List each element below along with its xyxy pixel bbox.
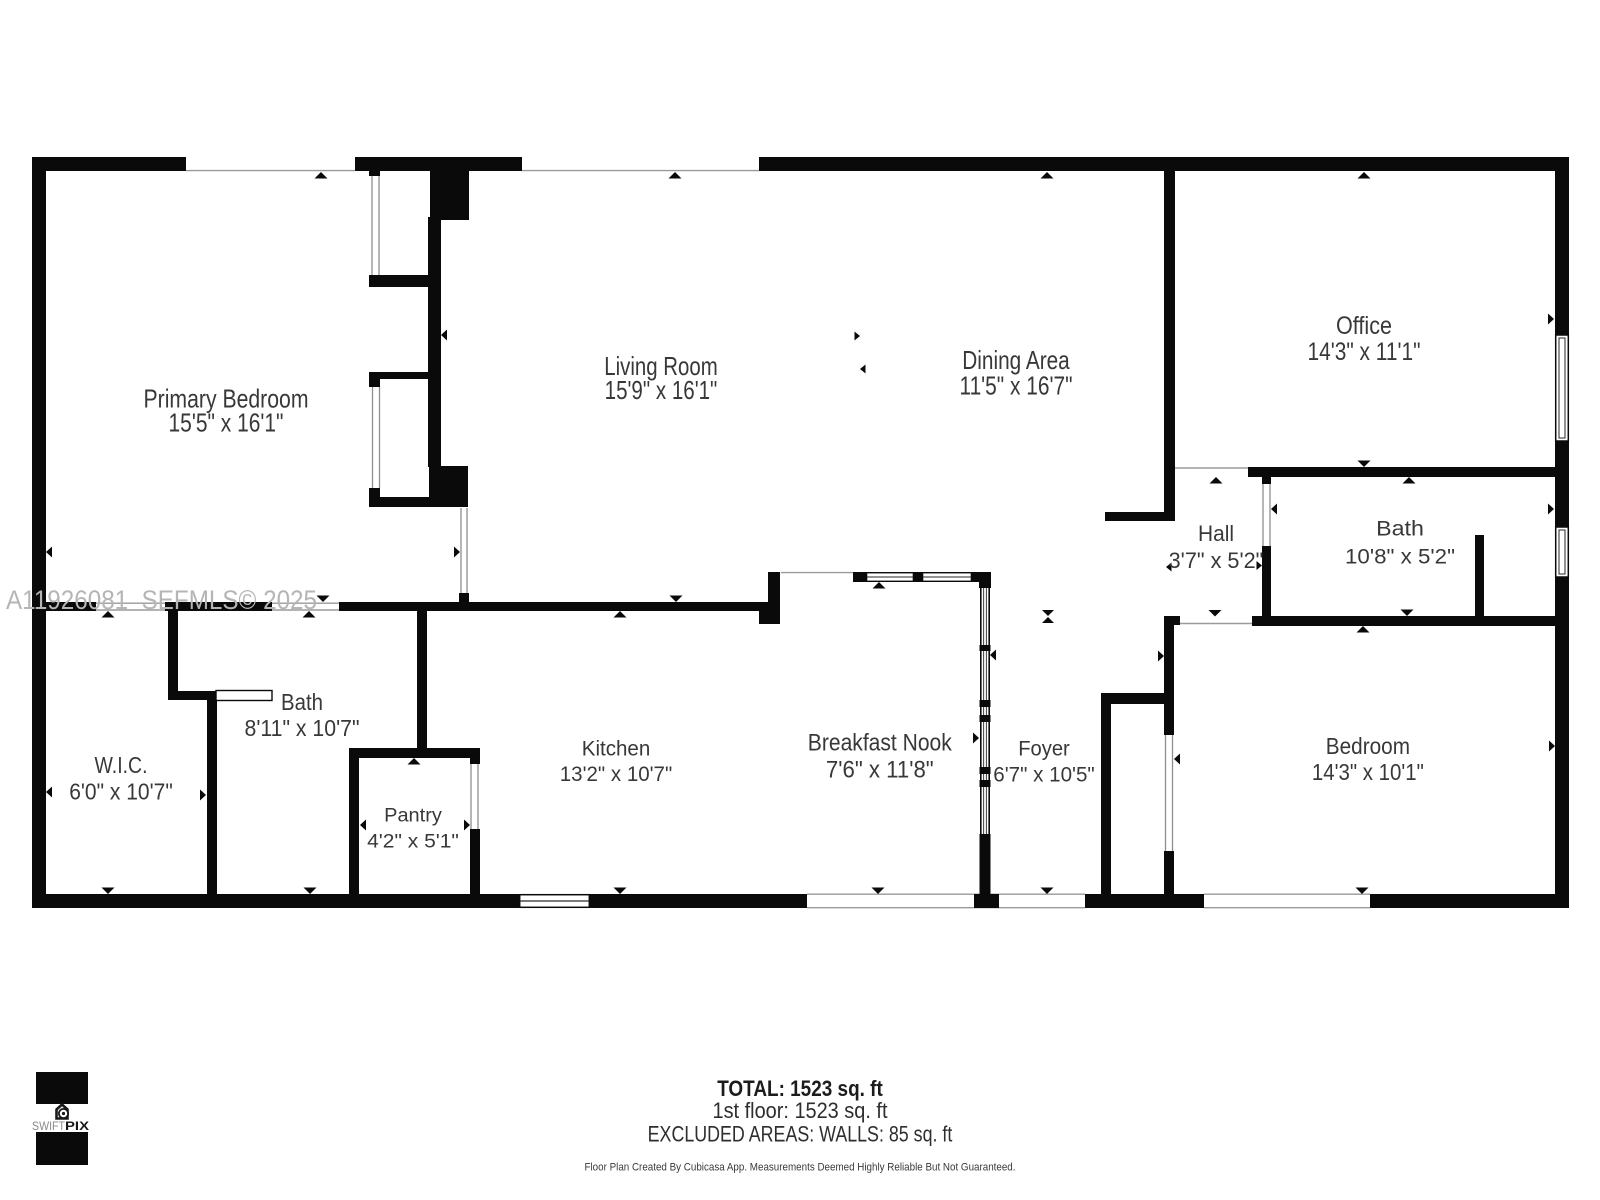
svg-text:4'2" x 5'1": 4'2" x 5'1" xyxy=(367,831,459,852)
svg-text:Kitchen: Kitchen xyxy=(582,737,651,760)
svg-text:6'0" x 10'7": 6'0" x 10'7" xyxy=(69,779,173,805)
svg-text:11'5" x 16'7": 11'5" x 16'7" xyxy=(960,371,1073,401)
svg-text:Floor Plan Created By Cubicasa: Floor Plan Created By Cubicasa App. Meas… xyxy=(585,1162,1016,1174)
svg-text:A11926081 SEFMLS© 2025: A11926081 SEFMLS© 2025 xyxy=(6,585,317,615)
svg-text:Foyer: Foyer xyxy=(1018,737,1070,761)
svg-text:PIX: PIX xyxy=(65,1119,89,1133)
svg-text:10'8" x 5'2": 10'8" x 5'2" xyxy=(1345,545,1455,568)
svg-text:14'3" x 10'1": 14'3" x 10'1" xyxy=(1312,759,1424,785)
svg-text:Bedroom: Bedroom xyxy=(1326,733,1410,759)
svg-text:Pantry: Pantry xyxy=(384,805,442,826)
svg-text:3'7" x 5'2": 3'7" x 5'2" xyxy=(1169,548,1264,573)
svg-text:EXCLUDED AREAS: WALLS: 85 sq.: EXCLUDED AREAS: WALLS: 85 sq. ft xyxy=(648,1121,953,1146)
svg-text:SWIFT: SWIFT xyxy=(32,1119,66,1133)
svg-text:14'3" x 11'1": 14'3" x 11'1" xyxy=(1308,338,1421,366)
svg-text:15'5" x 16'1": 15'5" x 16'1" xyxy=(169,408,284,438)
svg-text:Bath: Bath xyxy=(1376,517,1424,540)
svg-text:Bath: Bath xyxy=(281,689,323,715)
svg-text:13'2" x 10'7": 13'2" x 10'7" xyxy=(560,763,673,786)
svg-text:15'9" x 16'1": 15'9" x 16'1" xyxy=(605,375,718,405)
svg-text:Office: Office xyxy=(1336,312,1392,340)
svg-text:8'11" x 10'7": 8'11" x 10'7" xyxy=(245,715,360,741)
svg-text:7'6" x 11'8": 7'6" x 11'8" xyxy=(826,757,934,784)
svg-text:Hall: Hall xyxy=(1198,521,1234,546)
svg-text:6'7" x 10'5": 6'7" x 10'5" xyxy=(993,763,1095,787)
svg-text:Breakfast Nook: Breakfast Nook xyxy=(808,730,953,757)
svg-text:W.I.C.: W.I.C. xyxy=(95,752,148,778)
svg-text:1st floor: 1523 sq. ft: 1st floor: 1523 sq. ft xyxy=(713,1098,888,1123)
